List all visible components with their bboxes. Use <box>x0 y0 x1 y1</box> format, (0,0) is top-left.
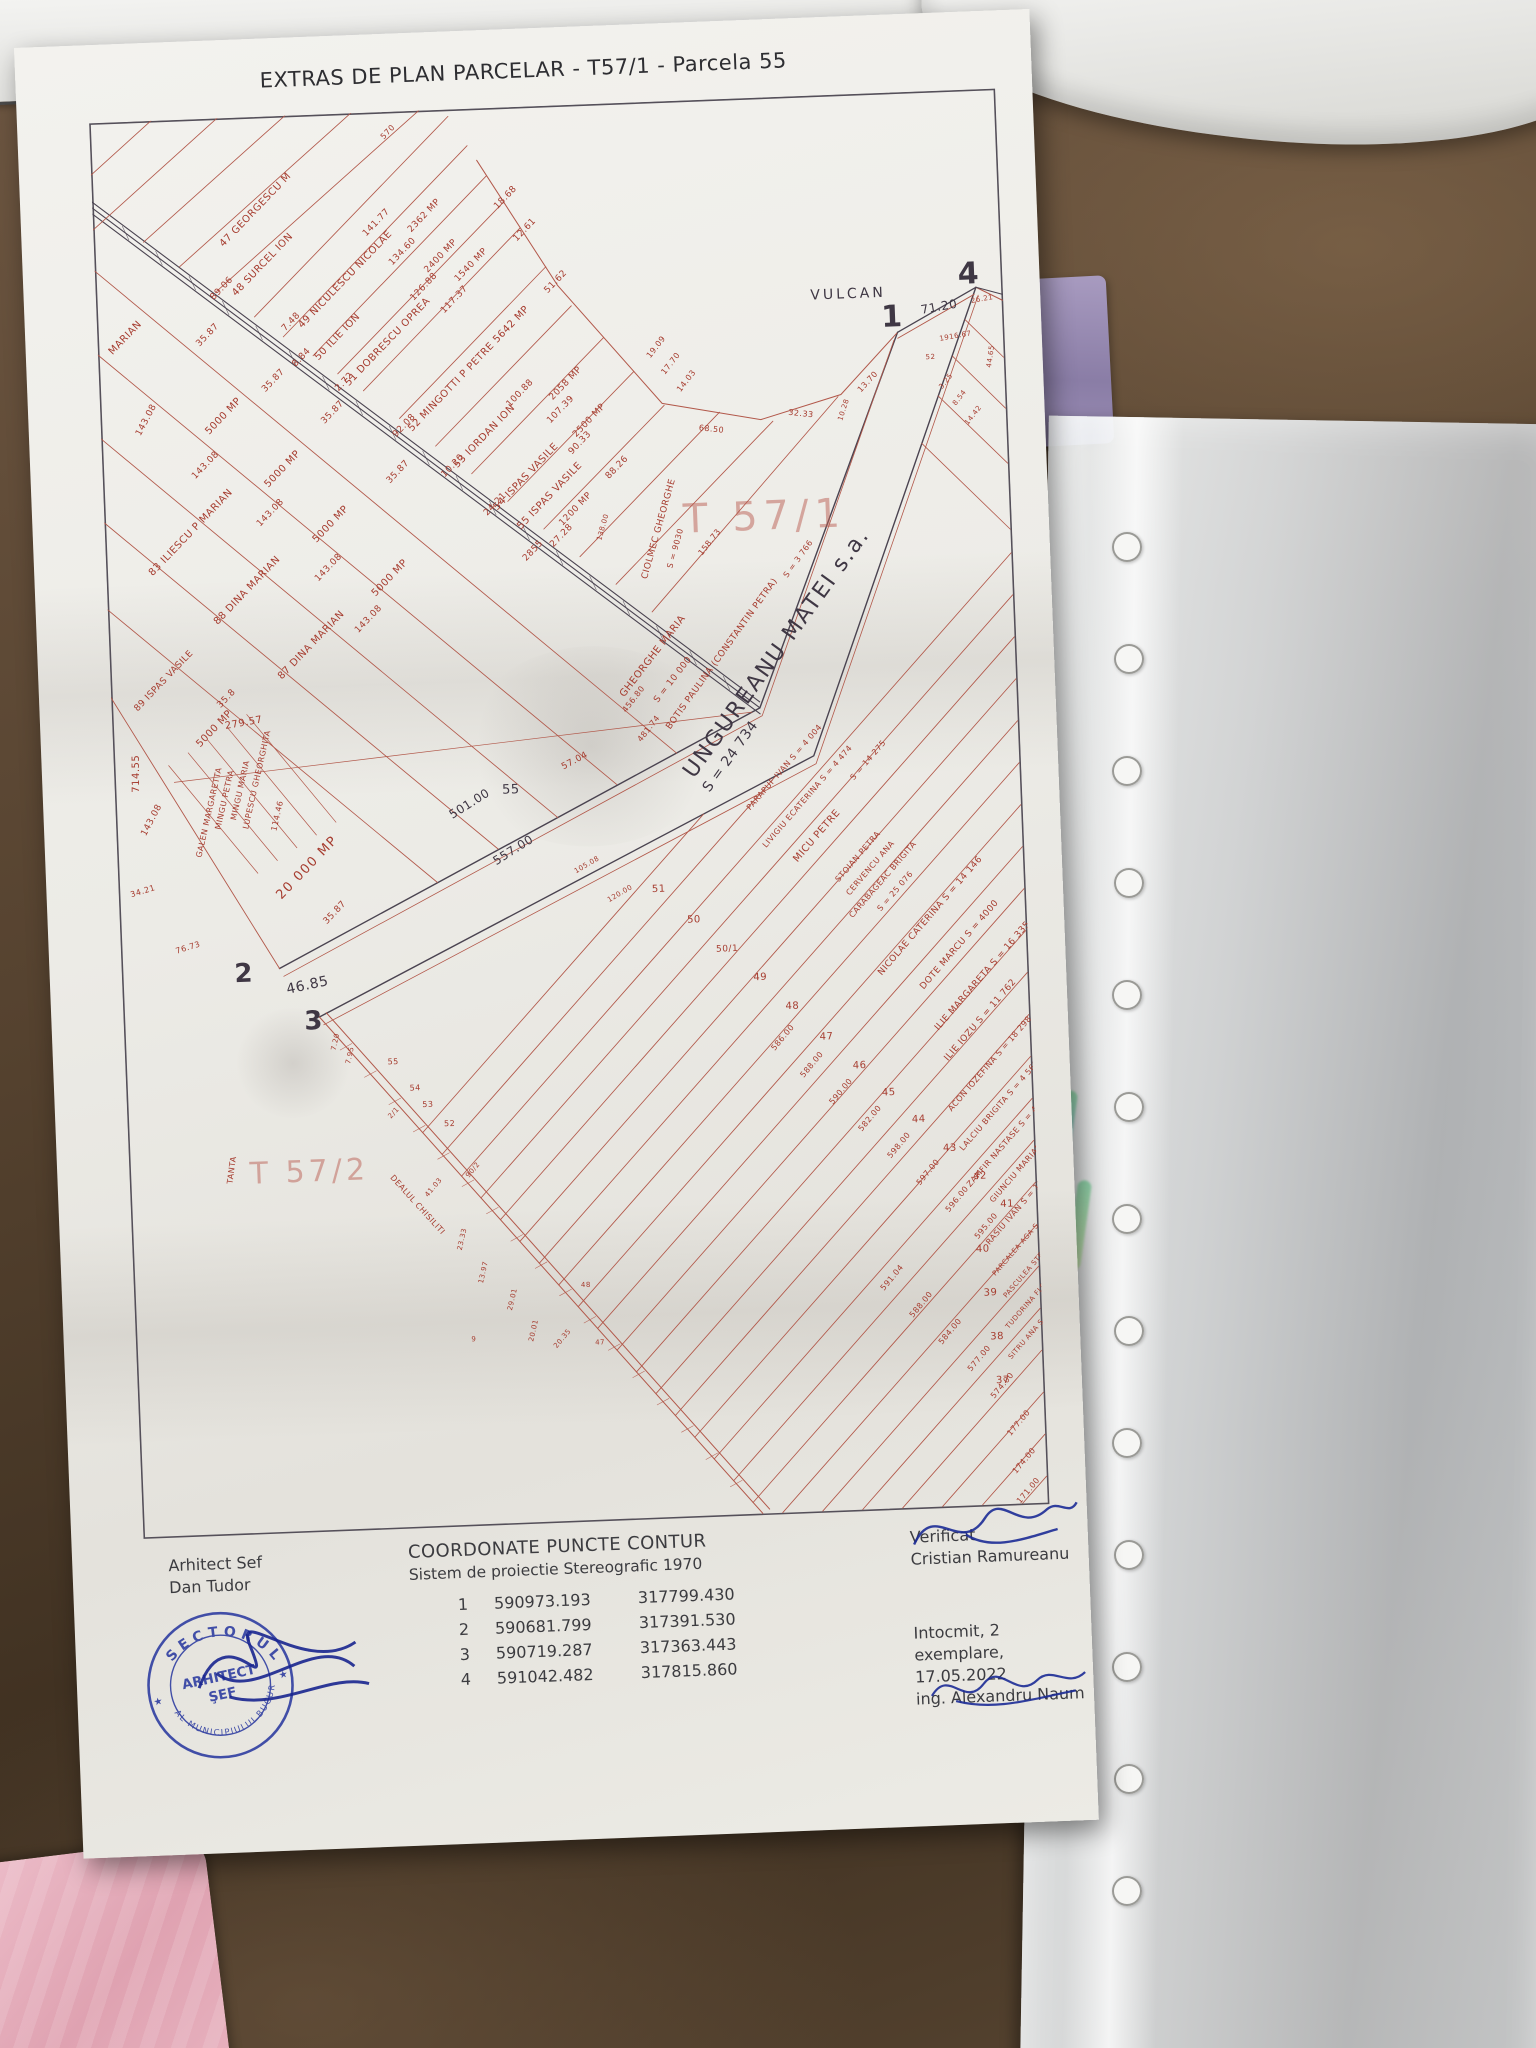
parcel-line <box>256 326 263 340</box>
map-label: 7.95 <box>344 1046 356 1065</box>
stamp-star-right: ★ <box>278 1669 289 1682</box>
map-label: S = 9030 <box>665 527 685 569</box>
boundary-line <box>292 287 1003 1017</box>
map-label: 20.01 <box>527 1319 540 1343</box>
map-label: T 57/2 <box>248 1152 369 1192</box>
map-label: 44 <box>912 1114 926 1126</box>
map-label: LALCIU BRIGITA S = 4 569 <box>958 1058 1041 1152</box>
coordinate-cell: 591042.482 <box>496 1661 629 1691</box>
map-label: 5000 MP <box>203 396 243 437</box>
map-label: 586.00 <box>769 1023 796 1053</box>
punch-hole <box>1112 1204 1142 1234</box>
map-label: 1916.67 <box>939 329 972 343</box>
parcel-line <box>633 1371 645 1377</box>
photo-scene: { "title": "EXTRAS DE PLAN PARCELAR - T5… <box>0 0 1536 2048</box>
official-stamp: SECTORUL AL MUNICIPIULUI BUCUR ARHITECT … <box>119 1581 321 1783</box>
map-label: 4 <box>957 256 980 292</box>
map-label: 53 <box>422 1100 434 1109</box>
punch-hole <box>1112 1652 1142 1682</box>
parcel-line <box>95 249 677 774</box>
map-label: 35.87 <box>322 899 349 926</box>
parcel-line <box>559 1289 571 1295</box>
parcel-line <box>897 1350 1048 1508</box>
map-label: 76.73 <box>175 940 202 956</box>
map-label: GHEORGHE MARIA <box>618 613 688 699</box>
map-label: 5000 MP <box>262 449 302 490</box>
map-label: 174.00 <box>1011 1446 1038 1476</box>
parcel-line <box>413 1125 425 1131</box>
parcel-line <box>89 118 221 230</box>
map-label: 105.08 <box>573 854 601 875</box>
punch-hole <box>1112 532 1142 562</box>
punch-hole <box>1114 1316 1144 1346</box>
map-label: 35.87 <box>194 322 221 349</box>
map-label: S = 14 275 <box>848 738 887 782</box>
map-label: 3 <box>304 1006 324 1037</box>
plan-document-paper: EXTRAS DE PLAN PARCELAR - T57/1 - Parcel… <box>14 9 1099 1859</box>
coordinate-cell: 317815.860 <box>628 1655 771 1685</box>
map-label: 2362 MP <box>406 197 443 235</box>
map-label: ACON IOZEFINA S = 18 298 <box>946 1014 1033 1113</box>
map-label: 50/1 <box>716 944 739 955</box>
map-label: 20.35 <box>552 1327 573 1349</box>
map-label: 48 <box>785 1001 799 1013</box>
map-label: 49 NICULESCU NICOLAE <box>296 229 394 331</box>
map-label: 57.04 <box>560 750 590 772</box>
parcel-plan-drawing: VULCAN142371.2046.85UNGUREANU MATEI s.a.… <box>89 88 1050 1540</box>
map-label: 577.00 <box>966 1343 993 1373</box>
map-label: 10.28 <box>836 398 851 422</box>
map-label: 46.85 <box>285 973 330 998</box>
parcel-line <box>623 601 630 615</box>
map-label: 51 DOBRESCU OPREA <box>343 296 433 389</box>
map-label: 143.08 <box>353 603 384 635</box>
map-label: 88.26 <box>604 454 631 481</box>
map-label: 114.46 <box>269 800 285 832</box>
parcel-line <box>922 440 1010 532</box>
map-label: 143.08 <box>134 403 159 438</box>
parcel-line <box>556 551 563 565</box>
map-label: 2400 MP <box>423 237 460 275</box>
map-label: 68.50 <box>698 423 724 435</box>
map-label: 52 <box>444 1119 456 1128</box>
map-label: 51.62 <box>543 268 570 295</box>
map-label: 598.00 <box>886 1130 913 1160</box>
map-label: 591.04 <box>879 1263 906 1293</box>
map-label: 46 <box>853 1060 867 1072</box>
map-label: 501.00 <box>447 786 493 822</box>
punch-hole <box>1112 1876 1142 1906</box>
coordinates-table: 1590973.193317799.4302590681.799317391.5… <box>410 1580 772 1694</box>
map-label: 597.00 <box>915 1157 942 1187</box>
parcel-line <box>356 401 363 415</box>
pink-cloth <box>0 1837 235 2048</box>
punch-hole <box>1112 1428 1142 1458</box>
map-label: 596.00 <box>944 1184 971 1214</box>
parcel-line <box>681 1426 693 1432</box>
map-label: 20 000 MP <box>273 833 341 903</box>
map-label: 143.08 <box>140 803 165 838</box>
verificat-block: Verificat Cristian Ramureanu <box>909 1521 1069 1571</box>
map-label: 570 <box>379 123 397 141</box>
parcel-line <box>222 301 229 315</box>
parcel-line <box>535 1262 547 1268</box>
parcel-line <box>486 1207 498 1213</box>
map-label: 47 <box>819 1031 833 1043</box>
map-label: 45 <box>882 1087 896 1099</box>
map-label: 5000 MP <box>370 557 410 598</box>
map-label: MICU PETRE <box>791 808 842 865</box>
map-label: 1 <box>881 299 904 335</box>
map-label: TANTA <box>225 1156 238 1186</box>
map-label: 55 <box>502 782 520 798</box>
map-label: 143.08 <box>255 497 286 529</box>
parcel-line <box>657 1398 669 1404</box>
map-label: 9 <box>471 1335 476 1343</box>
parcel-line <box>364 1071 376 1077</box>
map-label: 35.87 <box>385 458 412 485</box>
parcel-line <box>772 1224 1047 1512</box>
parcel-line <box>479 637 1036 1220</box>
parcel-line <box>814 1266 1048 1511</box>
map-label: 2/1 <box>386 1105 401 1120</box>
map-label: 177.00 <box>1005 1408 1032 1438</box>
map-label: 83 ILIESCU P MARIAN <box>147 487 235 578</box>
map-label: 39 <box>983 1287 997 1299</box>
map-label: 143.08 <box>313 552 344 584</box>
intocmit-line: Intocmit, 2 exemplare, 17.05.2022 <box>913 1616 1093 1689</box>
parcel-line <box>965 318 1003 358</box>
map-label: 14.03 <box>675 368 698 394</box>
map-label: 5000 MP <box>311 504 351 545</box>
map-label: 50 ILIE ION <box>313 311 363 362</box>
coordinate-cell: 1 <box>410 1591 495 1619</box>
map-label: 41.03 <box>423 1176 444 1198</box>
map-label: 41 <box>1000 1198 1014 1210</box>
coordinates-block: COORDONATE PUNCTE CONTUR Sistem de proie… <box>408 1528 772 1694</box>
coordinate-cell: 4 <box>413 1666 498 1694</box>
punch-hole <box>1114 644 1144 674</box>
map-label: 47 <box>595 1338 605 1346</box>
map-label: 19.09 <box>645 334 668 360</box>
map-label: 42 <box>973 1170 987 1182</box>
map-label: 49 <box>753 972 767 984</box>
map-label: 35.87 <box>260 367 287 394</box>
map-label: 29.01 <box>506 1287 519 1311</box>
map-label: 14.42 <box>963 404 983 427</box>
map-label: 38 <box>990 1331 1004 1343</box>
map-label: 8.84 <box>290 346 312 369</box>
map-label: 34.21 <box>129 883 156 899</box>
map-label: 71.20 <box>920 297 959 317</box>
map-label: 55 <box>387 1057 399 1066</box>
map-label: 120.00 <box>606 883 634 904</box>
parcel-line <box>437 1153 449 1159</box>
map-label: 2 <box>234 959 254 990</box>
parcel-line <box>89 121 153 175</box>
parcel-line <box>156 251 163 265</box>
parcel-line <box>723 676 730 690</box>
stamp-center-line2: ŞEF <box>207 1684 238 1706</box>
parcel-line <box>519 721 1037 1263</box>
parcel-line <box>122 226 129 240</box>
map-label: 13.97 <box>477 1260 490 1284</box>
map-label: 50 <box>687 914 701 926</box>
map-label: 48 SURCEL ION <box>230 231 295 298</box>
map-label: 88 DINA MARIAN <box>212 554 283 627</box>
map-label: 48 <box>581 1281 591 1289</box>
map-label: PARAPUF IVAN S = 4 004 <box>745 723 824 812</box>
map-label: 35.8 <box>216 687 238 710</box>
parcel-line <box>189 276 196 290</box>
map-label: 18.68 <box>492 184 519 211</box>
map-label: 17.70 <box>659 351 682 377</box>
parcel-line <box>730 1480 742 1486</box>
parcel-line <box>462 1180 474 1186</box>
map-label: 7.20 <box>330 1032 342 1051</box>
parcel-line <box>855 1308 1047 1509</box>
map-label: 171.00 <box>1015 1476 1042 1506</box>
map-label: 32.33 <box>788 408 814 420</box>
parcel-line <box>139 116 290 243</box>
coordinate-cell: 2 <box>411 1616 496 1644</box>
parcel-line <box>389 1098 401 1104</box>
map-label: 8.54 <box>951 388 968 407</box>
map-label: 52 <box>925 353 935 361</box>
map-label: 584.00 <box>937 1317 964 1347</box>
map-label: 44.65 <box>985 345 996 368</box>
map-label: 51 <box>652 884 666 896</box>
map-label: 23.33 <box>456 1227 469 1251</box>
map-label: 54 <box>409 1083 421 1092</box>
intocmit-block: Intocmit, 2 exemplare, 17.05.2022 ing. A… <box>913 1616 1094 1711</box>
map-label: 40 <box>976 1243 990 1255</box>
parcel-line <box>584 1317 596 1323</box>
parcel-line <box>620 931 1042 1372</box>
parcel-line <box>590 576 597 590</box>
punch-hole <box>1114 1540 1144 1570</box>
punch-hole <box>1114 1092 1144 1122</box>
map-label: 117.37 <box>439 284 470 316</box>
parcel-line <box>323 376 330 390</box>
map-label: 481.74 <box>636 714 662 744</box>
map-label: UNGUREANU MATEI s.a. <box>678 524 875 783</box>
parcel-line <box>467 338 609 474</box>
map-label: VULCAN <box>810 285 886 304</box>
punch-hole <box>1114 868 1144 898</box>
stamp-star-left: ★ <box>153 1696 164 1709</box>
parcel-line <box>428 776 790 1154</box>
map-label: 590.00 <box>827 1077 854 1107</box>
map-label: 143.08 <box>190 450 221 482</box>
parcel-line <box>423 451 430 465</box>
map-label: 43 <box>943 1143 957 1155</box>
map-label: T 57/1 <box>681 490 847 542</box>
map-label: 588.00 <box>908 1290 935 1320</box>
verificat-name: Cristian Ramureanu <box>910 1543 1069 1571</box>
map-label: MARIAN <box>107 319 144 357</box>
parcel-line <box>438 553 1034 1176</box>
punch-hole <box>1114 1764 1144 1794</box>
parcel-line <box>539 405 668 529</box>
punch-hole <box>1112 980 1142 1010</box>
punch-hole <box>1112 756 1142 786</box>
parcel-line <box>411 814 715 1132</box>
map-label: 714.55 <box>131 755 142 793</box>
map-label: 35.87 <box>319 399 346 426</box>
parcel-line <box>456 476 463 490</box>
map-label: 87 DINA MARIAN <box>276 609 347 682</box>
map-label: 89 ISPAS VASILE <box>133 649 196 714</box>
coordinate-cell: 3 <box>412 1641 497 1669</box>
parcel-line <box>938 393 1008 466</box>
parcel-line <box>608 1344 620 1350</box>
